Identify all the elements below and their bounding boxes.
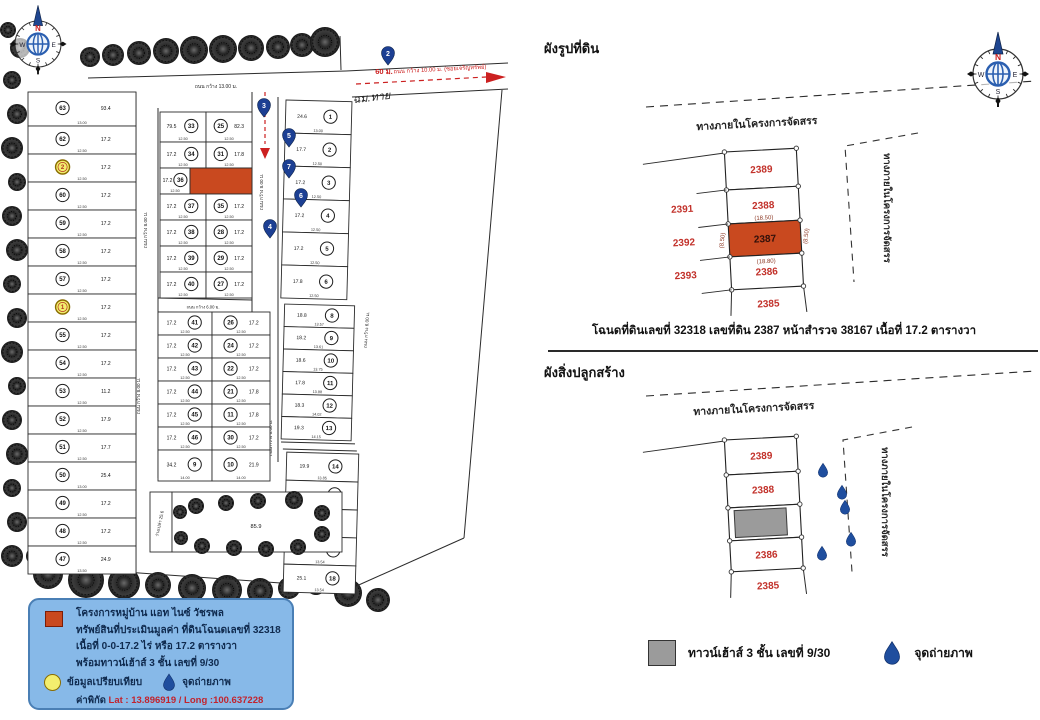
boundary-line <box>643 441 725 452</box>
photo-pin-number: 4 <box>268 224 272 231</box>
lot-number: 11 <box>327 381 334 387</box>
tree-icon <box>188 498 204 514</box>
survey-corner-marker <box>727 539 732 544</box>
plot-number: 2387 <box>754 233 777 245</box>
lot-number: 28 <box>217 230 224 236</box>
lot-area: 17.2 <box>295 213 305 219</box>
lot-dimension: 12.50 <box>312 195 322 199</box>
tree-icon <box>310 27 340 57</box>
lot-dimension: 12.50 <box>236 376 246 380</box>
subject-lot <box>190 168 252 194</box>
entry-road-arrow <box>486 72 506 83</box>
survey-corner-marker <box>796 469 801 474</box>
lot-number: 26 <box>227 321 234 327</box>
land-plan-diagram: 23892388238723862385239123922393(18.50)(… <box>642 146 815 321</box>
photo-pin-number: 6 <box>299 193 303 200</box>
lot-number: 62 <box>59 137 66 143</box>
compass-needle <box>993 32 1003 54</box>
townhouse-building <box>734 508 787 538</box>
boundary-line <box>804 286 807 312</box>
photo-pin-number: 7 <box>287 164 291 171</box>
photo-point-icon <box>846 532 855 546</box>
boundary-line <box>700 257 730 261</box>
tree-icon <box>238 35 264 61</box>
plot-dimension: (8.50) <box>803 228 811 244</box>
lot-area: 17.2 <box>167 256 177 262</box>
plot-number: 2385 <box>757 580 780 592</box>
compass-w: W <box>19 42 26 49</box>
lot-area: 21.9 <box>249 463 259 469</box>
lot-dimension: 12.50 <box>77 401 87 405</box>
road-label: ถนน กว้าง 6.00 ม. <box>363 312 371 349</box>
tree-icon <box>180 36 208 64</box>
lot-number: 31 <box>217 152 224 158</box>
lot-dimension: 12.50 <box>178 293 188 297</box>
lot-area: 34.2 <box>167 463 177 469</box>
tree-icon <box>6 443 28 465</box>
lot-area: 17.2 <box>101 361 111 367</box>
compass-n: N <box>35 24 41 33</box>
compass-w: W <box>978 72 985 79</box>
lot-number: 42 <box>191 344 198 350</box>
comparison-point-icon <box>44 674 61 691</box>
lot-dimension: 12.50 <box>178 267 188 271</box>
legend-project-name: โครงการหมู่บ้าน แอท ไนซ์ วัชรพล <box>76 606 281 623</box>
lot-dimension: 12.50 <box>236 353 246 357</box>
lat-label: Lat <box>109 695 123 706</box>
tree-icon <box>102 44 124 66</box>
lot-area: 17.2 <box>101 333 111 339</box>
boundary-line <box>643 153 725 164</box>
photo-point-label: จุดถ่ายภาพ <box>914 644 972 663</box>
lat-value: : 13.896919 <box>125 695 176 706</box>
boundary-line <box>283 449 357 451</box>
boundary-line <box>88 71 346 78</box>
road-label: ถนน กว้าง 8.00 ม. <box>143 212 148 248</box>
plot-number: 2389 <box>750 164 773 176</box>
lot-dimension: 13.00 <box>77 485 87 489</box>
survey-corner-marker <box>794 146 799 151</box>
lot-number: 48 <box>59 529 66 535</box>
lot-area: 93.4 <box>101 106 111 112</box>
road-label: ทางภายในโครงการจัดสรร <box>696 113 818 133</box>
road-label: ถนน กว้าง 8.00 ม. <box>136 378 141 414</box>
lot-number: 54 <box>59 361 66 367</box>
lot-number: 47 <box>59 557 66 563</box>
lot-dimension: 12.50 <box>180 353 190 357</box>
building-legend: ทาวน์เฮ้าส์ 3 ชั้น เลขที่ 9/30 จุดถ่ายภา… <box>648 640 973 666</box>
lot-area: 17.2 <box>101 193 111 199</box>
lot-number: 21 <box>227 390 234 396</box>
lot-number: 46 <box>191 436 198 442</box>
lot-area: 17.2 <box>249 436 259 442</box>
lot-dimension: 12.50 <box>224 267 234 271</box>
lot-number: 45 <box>191 413 198 419</box>
lot-number: 36 <box>177 178 184 184</box>
lot-dimension: 12.50 <box>77 261 87 265</box>
coords-prefix: ค่าพิกัด <box>76 695 106 706</box>
road-label: ถนน กว้าง 13.00 ม. <box>195 83 237 90</box>
plot-number: 2385 <box>757 298 780 310</box>
lot-number: 40 <box>188 282 195 288</box>
boundary-line <box>730 290 733 316</box>
photo-point-icon <box>840 500 849 514</box>
lot-number: 30 <box>227 436 234 442</box>
tree-icon <box>258 541 274 557</box>
lot-area: 17.2 <box>234 256 244 262</box>
lot-dimension: 12.50 <box>236 445 246 449</box>
lot-dimension: 12.50 <box>309 294 319 298</box>
lot-number: 41 <box>191 321 198 327</box>
lot-area: 17.8 <box>249 390 259 396</box>
adjacent-plot-number: 2393 <box>674 270 697 282</box>
tree-icon <box>226 540 242 556</box>
plot-number: 2388 <box>752 484 775 496</box>
lot-dimension: 13.00 <box>313 129 323 133</box>
photo-point-icon <box>162 673 176 691</box>
comparison-label: ข้อมูลเปรียบเทียบ <box>67 675 142 690</box>
photo-point-icon <box>882 640 902 666</box>
lot-number: 49 <box>59 501 66 507</box>
lot-area: 18.6 <box>296 358 306 364</box>
lot-dimension: 14.00 <box>236 476 246 480</box>
lot-dimension: 12.50 <box>77 317 87 321</box>
lot-number: 11 <box>227 413 234 419</box>
boundary-dashed-line <box>646 371 1036 396</box>
lot-dimension: 12.50 <box>224 241 234 245</box>
plot-diagrams: ทางภายในโครงการจัดสรรทางภายในโครงการจัดส… <box>535 0 1040 720</box>
legend-icon-row: ข้อมูลเปรียบเทียบ จุดถ่ายภาพ <box>44 673 231 691</box>
adjacent-plot-number: 2391 <box>671 204 694 216</box>
photo-point-label: จุดถ่ายภาพ <box>182 675 231 690</box>
lot-dimension: 12.50 <box>77 177 87 181</box>
lot-area: 17.2 <box>249 321 259 327</box>
boundary-line <box>281 442 355 444</box>
tree-icon <box>366 588 390 612</box>
survey-corner-marker <box>798 218 803 223</box>
tree-icon <box>127 41 151 65</box>
legend-text-lines: โครงการหมู่บ้าน แอท ไนซ์ วัชรพล ทรัพย์สิ… <box>76 606 281 672</box>
lot-dimension: 12.50 <box>77 205 87 209</box>
lot-number: 10 <box>327 359 334 365</box>
lot-dimension: 12.50 <box>180 445 190 449</box>
adjacent-plot-number: 2392 <box>673 237 696 249</box>
lot-dimension: 12.50 <box>180 399 190 403</box>
tree-icon <box>250 493 266 509</box>
lot-number: 60 <box>59 193 66 199</box>
lot-area: 17.7 <box>296 147 306 153</box>
tree-icon <box>3 275 21 293</box>
lot-area: 24.9 <box>101 557 111 563</box>
tree-icon <box>314 505 330 521</box>
plot-number: 2388 <box>752 200 775 212</box>
plot-dimension: (18.80) <box>757 259 776 266</box>
photo-pin-number: 5 <box>287 133 291 140</box>
tree-icon <box>1 137 23 159</box>
lot-dimension: 12.50 <box>236 422 246 426</box>
lot-dimension: 12.50 <box>178 215 188 219</box>
lot-dimension: 12.50 <box>77 429 87 433</box>
tree-icon <box>209 35 237 63</box>
lot-number: 12 <box>326 404 333 410</box>
lot-dimension: 12.50 <box>77 541 87 545</box>
compass-rose-icon: NWES <box>9 5 66 74</box>
coordinates-line: ค่าพิกัด Lat : 13.896919 / Long :100.637… <box>76 693 263 708</box>
lot-number: 55 <box>59 333 66 339</box>
lot-number: 13 <box>326 426 333 432</box>
lot-area: 25.4 <box>101 473 111 479</box>
tree-icon <box>285 491 303 509</box>
tree-icon <box>145 572 171 598</box>
tree-icon <box>174 531 188 545</box>
tree-icon <box>1 545 23 567</box>
tree-icon <box>218 495 234 511</box>
road-label: ถนน กว้าง 8.00 ม. <box>259 174 264 210</box>
tree-icon <box>3 479 21 497</box>
lot-dimension: 13.85 <box>317 476 327 480</box>
survey-corner-marker <box>799 251 804 256</box>
lot-dimension: 13.00 <box>77 121 87 125</box>
lot-number: 29 <box>217 256 224 262</box>
lot-dimension: 12.50 <box>77 289 87 293</box>
tree-icon <box>266 35 290 59</box>
lot-dimension: 12.50 <box>170 189 180 193</box>
tree-icon <box>80 47 100 67</box>
survey-corner-marker <box>801 566 806 571</box>
tree-icon <box>6 239 28 261</box>
side-road-label: ทางภายในโครงการจัดสรร <box>879 447 891 558</box>
tree-icon <box>194 538 210 554</box>
tree-icon <box>3 71 21 89</box>
tree-icon <box>1 341 23 363</box>
survey-corner-marker <box>722 438 727 443</box>
lot-area: 19.3 <box>294 425 304 431</box>
lot-dimension: 13.88 <box>313 390 323 394</box>
lot-dimension: 12.50 <box>178 241 188 245</box>
compass-rose-icon: NWES <box>967 32 1029 107</box>
lot-area: 17.2 <box>294 246 304 252</box>
lot-number: 43 <box>191 367 198 373</box>
survey-corner-marker <box>729 570 734 575</box>
lot-dimension: 12.50 <box>77 233 87 237</box>
lot-area: 24.6 <box>297 114 307 120</box>
boundary-line <box>702 290 732 294</box>
lot-area: 17.2 <box>249 367 259 373</box>
lot-number: 27 <box>217 282 224 288</box>
photo-point-icon <box>817 546 826 560</box>
boundary-line <box>729 572 732 598</box>
subject-lot-swatch <box>45 611 63 627</box>
legend-house-line: พร้อมทาวน์เฮ้าส์ 3 ชั้น เลขที่ 9/30 <box>76 656 281 673</box>
plot-number: 2386 <box>755 266 778 278</box>
boundary-line <box>464 90 502 538</box>
lot-number: 51 <box>59 445 66 451</box>
building-plan-diagram: 2389238823862385 <box>642 434 806 602</box>
lot-dimension: 12.50 <box>313 162 323 166</box>
lot-dimension: 12.50 <box>77 373 87 377</box>
compass-e: E <box>51 42 56 49</box>
townhouse-label: ทาวน์เฮ้าส์ 3 ชั้น เลขที่ 9/30 <box>688 644 830 663</box>
lot-dimension: 12.50 <box>180 376 190 380</box>
survey-corner-marker <box>798 502 803 507</box>
lot-area: 17.8 <box>293 279 303 285</box>
photo-point-icon <box>818 463 827 477</box>
lot-number: 59 <box>59 221 66 227</box>
lot-area: 17.2 <box>295 180 305 186</box>
lot-dimension: 12.50 <box>77 457 87 461</box>
lot-area: 17.2 <box>167 367 177 373</box>
lot-dimension: 14.02 <box>312 412 322 416</box>
appraisal-map-page: ถนน กว้าง 13.00 ม.ถนน กว้าง 8.00 ม.ถนน ก… <box>0 0 1040 720</box>
lot-area: 17.2 <box>167 230 177 236</box>
boundary-line <box>698 224 728 228</box>
map-legend: โครงการหมู่บ้าน แอท ไนซ์ วัชรพล ทรัพย์สิ… <box>28 598 294 710</box>
entry-road-length: 60 ม. <box>375 67 392 76</box>
plot-number: 2386 <box>755 549 778 561</box>
lot-area: 17.2 <box>163 178 173 184</box>
lot-area: 17.8 <box>295 380 305 386</box>
lot-number: 18 <box>329 576 336 582</box>
lot-dimension: 12.50 <box>236 399 246 403</box>
lot-dimension: 12.50 <box>224 137 234 141</box>
lot-number: 34 <box>188 152 195 158</box>
boundary-line <box>696 190 726 194</box>
lot-area: 25.1 <box>297 575 307 581</box>
lot-area: 17.8 <box>234 152 244 158</box>
lot-dimension: 13.54 <box>315 560 325 564</box>
lot-number: 50 <box>59 473 66 479</box>
photo-pin-icon: 2 <box>382 47 395 66</box>
lot-number: 24 <box>227 344 234 350</box>
lot-area: 17.2 <box>101 277 111 283</box>
tree-icon <box>2 410 22 430</box>
lot-area: 17.2 <box>101 529 111 535</box>
lot-dimension: 12.50 <box>77 149 87 153</box>
tree-icon <box>290 539 306 555</box>
lot-area: 11.2 <box>101 389 111 395</box>
lot-number: 22 <box>227 367 234 373</box>
lot-dimension: 12.50 <box>311 228 321 232</box>
lot-area: 17.2 <box>249 344 259 350</box>
compass-needle <box>33 5 42 25</box>
lot-number: 14 <box>332 464 339 470</box>
photo-pin-icon: 3 <box>258 99 271 118</box>
compass-s: S <box>36 57 40 64</box>
lot-area: 17.2 <box>234 204 244 210</box>
lot-dimension: 12.50 <box>236 330 246 334</box>
tree-icon <box>2 206 22 226</box>
survey-corner-marker <box>796 184 801 189</box>
lot-number: 38 <box>188 230 195 236</box>
lot-dimension: 12.50 <box>77 345 87 349</box>
survey-corner-marker <box>801 284 806 289</box>
survey-corner-marker <box>799 535 804 540</box>
lot-dimension: 12.50 <box>77 513 87 517</box>
compass-n: N <box>995 52 1001 62</box>
lot-area: 18.3 <box>295 403 305 409</box>
lot-dimension: 14.00 <box>180 476 190 480</box>
boundary-line <box>340 36 341 70</box>
lot-number: 39 <box>188 256 195 262</box>
lot-number: 44 <box>191 390 198 396</box>
lot-area: 17.2 <box>101 221 111 227</box>
legend-area-line: เนื้อที่ 0-0-17.2 ไร่ หรือ 17.2 ตารางวา <box>76 639 281 656</box>
lot-dimension: 13.75 <box>313 368 323 372</box>
lot-number: 37 <box>188 204 195 210</box>
survey-corner-marker <box>722 150 727 155</box>
entry-road-label: ถนน กว้าง 10.00 ม. (ซอยเจริญทรัพย์) <box>393 63 486 76</box>
photo-pin-icon: 4 <box>264 220 277 239</box>
photo-pin-number: 3 <box>262 103 266 110</box>
lot-dimension: 13.50 <box>77 569 87 573</box>
road-label: ถนน กว้าง 6.00 ม. <box>186 305 219 310</box>
plot-dimension: (8.50) <box>719 232 727 248</box>
tree-icon <box>7 512 27 532</box>
lot-area: 19.9 <box>299 463 309 469</box>
tree-icon <box>314 526 330 542</box>
lot-area: 17.2 <box>101 249 111 255</box>
lot-area: 79.5 <box>167 124 177 130</box>
tree-icon <box>173 505 187 519</box>
survey-corner-marker <box>794 434 799 439</box>
lot-dimension: 12.50 <box>178 163 188 167</box>
tree-icon <box>7 104 27 124</box>
boundary-line <box>352 538 464 588</box>
lot-dimension: 12.50 <box>310 261 320 265</box>
lot-number: 57 <box>59 277 66 283</box>
long-value: :100.637228 <box>210 695 263 706</box>
lot-dimension: 14.15 <box>311 435 321 439</box>
lot-area: 17.2 <box>167 436 177 442</box>
photo-pin-number: 2 <box>386 51 390 58</box>
lot-number: 52 <box>59 417 66 423</box>
lot-number: 33 <box>188 124 195 130</box>
lot-dimension: 13.54 <box>314 588 324 592</box>
lot-area: 17.2 <box>167 282 177 288</box>
plot-number: 2389 <box>750 451 773 463</box>
lot-area: 17.8 <box>249 413 259 419</box>
lot-number: 58 <box>59 249 66 255</box>
long-label: Long <box>184 695 207 706</box>
orchard-area: 85.9 <box>251 524 262 530</box>
lot-number: 35 <box>217 204 224 210</box>
survey-corner-marker <box>724 473 729 478</box>
lot-area: 82.3 <box>234 124 244 130</box>
lot-area: 17.2 <box>101 501 111 507</box>
lot-area: 17.2 <box>234 230 244 236</box>
lot-area: 17.9 <box>101 417 111 423</box>
side-road-dashed-line <box>843 427 912 572</box>
lot-area: 17.2 <box>101 165 111 171</box>
lot-area: 17.2 <box>167 321 177 327</box>
lot-number: 10 <box>227 463 234 469</box>
tree-icon <box>0 22 16 38</box>
lot-area: 17.2 <box>167 204 177 210</box>
lot-dimension: 12.50 <box>180 330 190 334</box>
road-label: ทางภายในโครงการจัดสรร <box>693 398 815 418</box>
photo-route-arrow <box>260 148 270 159</box>
boundary-line <box>803 568 806 594</box>
handwritten-note: ฉม.ทาย <box>352 90 392 107</box>
lot-number: 53 <box>59 389 66 395</box>
coords-slash: / <box>179 695 182 706</box>
lot-dimension: 12.50 <box>178 137 188 141</box>
lot-area: 17.2 <box>167 344 177 350</box>
lot-area: 17.2 <box>234 282 244 288</box>
lot-area: 17.2 <box>167 390 177 396</box>
lot-dimension: 13.57 <box>314 323 324 327</box>
plot-dimension: (18.50) <box>754 215 773 222</box>
